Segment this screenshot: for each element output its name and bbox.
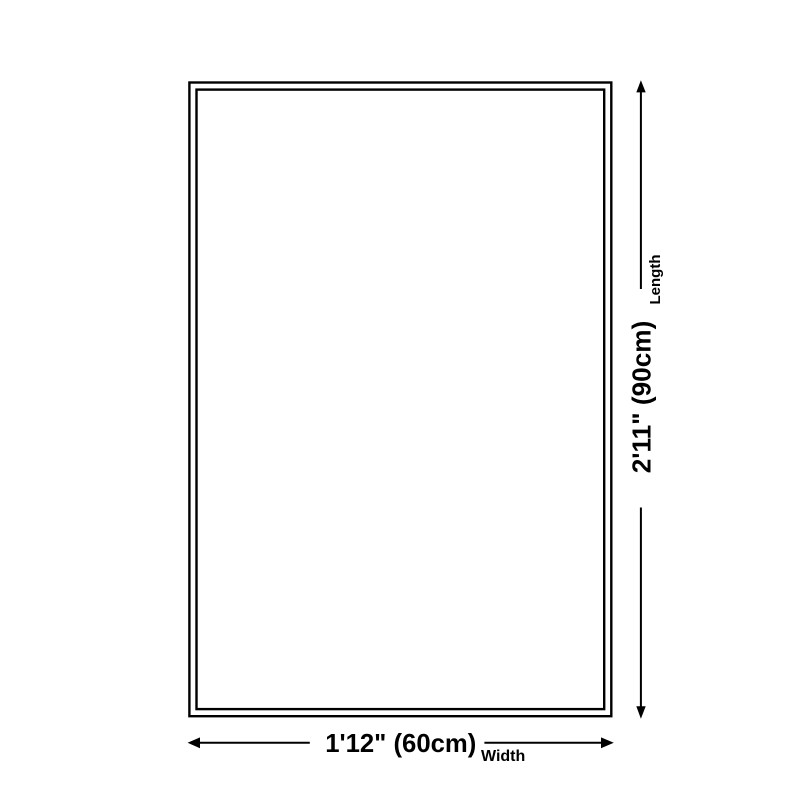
svg-text:1'12" (60cm): 1'12" (60cm) (325, 730, 476, 758)
svg-text:Length: Length (647, 255, 664, 305)
svg-text:2'11" (90cm): 2'11" (90cm) (626, 321, 656, 474)
svg-text:Width: Width (481, 748, 525, 765)
